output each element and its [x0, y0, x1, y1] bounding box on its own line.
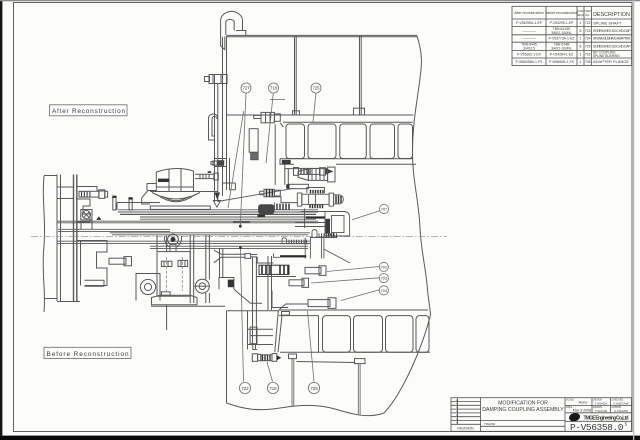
svg-text:P-W56058A-1-FS: P-W56058A-1-FS [516, 60, 543, 64]
svg-text:REQD: REQD [577, 13, 585, 17]
svg-text:Mar-3-2008: Mar-3-2008 [573, 409, 592, 413]
svg-text:After reconstruction: After reconstruction [514, 11, 544, 15]
svg-text:P-V54295-1-EP: P-V54295-1-EP [550, 21, 574, 25]
svg-text:ITEM: ITEM [585, 9, 591, 13]
svg-text:SPLINE BUSHING ADAPTER: SPLINE BUSHING ADAPTER [593, 37, 631, 41]
svg-text:K.MIZGAW: K.MIZGAW [613, 401, 628, 405]
svg-text:P-V56358.0: P-V56358.0 [570, 422, 624, 433]
svg-text:Before Reconstruction: Before Reconstruction [47, 351, 129, 358]
svg-text:1: 1 [580, 52, 582, 56]
svg-text:3/4X3.5: 3/4X3.5 [523, 46, 535, 50]
svg-text:SCREW,HEX.SOC.HD.CAP: SCREW,HEX.SOC.HD.CAP [593, 45, 631, 49]
svg-text:SCALE: SCALE [566, 398, 574, 401]
svg-text:SPLINE SHAFT: SPLINE SHAFT [593, 20, 622, 25]
svg-text:————: ———— [522, 37, 536, 41]
svg-text:725: 725 [310, 386, 318, 391]
svg-text:MODIFICATION FOR: MODIFICATION FOR [498, 401, 548, 407]
svg-text:TRH084: TRH084 [484, 422, 496, 426]
svg-text:704: 704 [381, 289, 387, 293]
svg-text:After Reconstruction: After Reconstruction [52, 108, 125, 115]
svg-text:QUAN: QUAN [577, 9, 585, 13]
svg-text:DATE: DATE [566, 406, 573, 409]
svg-text:T.SUGIM: T.SUGIM [595, 409, 608, 413]
svg-text:702: 702 [585, 52, 591, 56]
svg-text:————: ———— [522, 29, 536, 33]
svg-text:DESCRIPTION: DESCRIPTION [593, 12, 630, 18]
svg-text:3/4X2-10UNL: 3/4X2-10UNL [551, 46, 572, 50]
svg-text:A: A [456, 421, 458, 425]
svg-text:TMGE Engineering Co.,Ltd: TMGE Engineering Co.,Ltd [584, 415, 629, 421]
svg-text:1: 1 [580, 37, 582, 41]
svg-text:3/8X2-10UNL: 3/8X2-10UNL [551, 31, 572, 35]
svg-text:P-V53773A-1-EZ: P-V53773A-1-EZ [549, 37, 575, 41]
svg-text:724: 724 [585, 37, 591, 41]
svg-text:P-V55302-1-DX: P-V55302-1-DX [517, 52, 542, 56]
svg-text:K.TAKIZW: K.TAKIZW [614, 409, 628, 413]
svg-text:725: 725 [585, 45, 591, 49]
svg-text:1: 1 [580, 60, 582, 64]
svg-text:P-V54284-1-EZ: P-V54284-1-EZ [550, 52, 574, 56]
svg-text:727: 727 [243, 86, 251, 91]
svg-text:8: 8 [580, 29, 582, 33]
svg-text:1: 1 [580, 21, 582, 25]
svg-text:None: None [578, 401, 587, 405]
svg-text:ADAPTER FLANGE: ADAPTER FLANGE [593, 59, 629, 64]
svg-text:SCREW,HEX.SOC.HD.CAP: SCREW,HEX.SOC.HD.CAP [593, 29, 631, 33]
svg-text:707: 707 [381, 208, 387, 212]
svg-text:708: 708 [585, 60, 591, 64]
svg-text:NO.: NO. [585, 13, 590, 17]
svg-text:P-W5660B-1-FS: P-W5660B-1-FS [549, 60, 575, 64]
svg-text:SPLINE BUSHING: SPLINE BUSHING [593, 54, 620, 58]
svg-text:722: 722 [241, 386, 249, 391]
svg-text:DAMPING COUPLING ASSEMBLY: DAMPING COUPLING ASSEMBLY [482, 407, 564, 413]
svg-text:P-V54295A-1-EP: P-V54295A-1-EP [516, 21, 543, 25]
svg-text:723: 723 [585, 29, 591, 33]
svg-text:725: 725 [313, 86, 321, 91]
svg-text:T.ASADA: T.ASADA [595, 401, 608, 405]
svg-text:718: 718 [270, 86, 278, 91]
svg-text:702: 702 [381, 265, 387, 269]
svg-text:703: 703 [381, 277, 387, 281]
svg-text:718: 718 [269, 386, 277, 391]
svg-text:5: 5 [625, 422, 628, 428]
svg-text:REVISION: REVISION [457, 427, 474, 431]
svg-text:Before reconstruction: Before reconstruction [545, 11, 577, 15]
svg-text:722: 722 [585, 21, 591, 25]
svg-text:8: 8 [580, 45, 582, 49]
